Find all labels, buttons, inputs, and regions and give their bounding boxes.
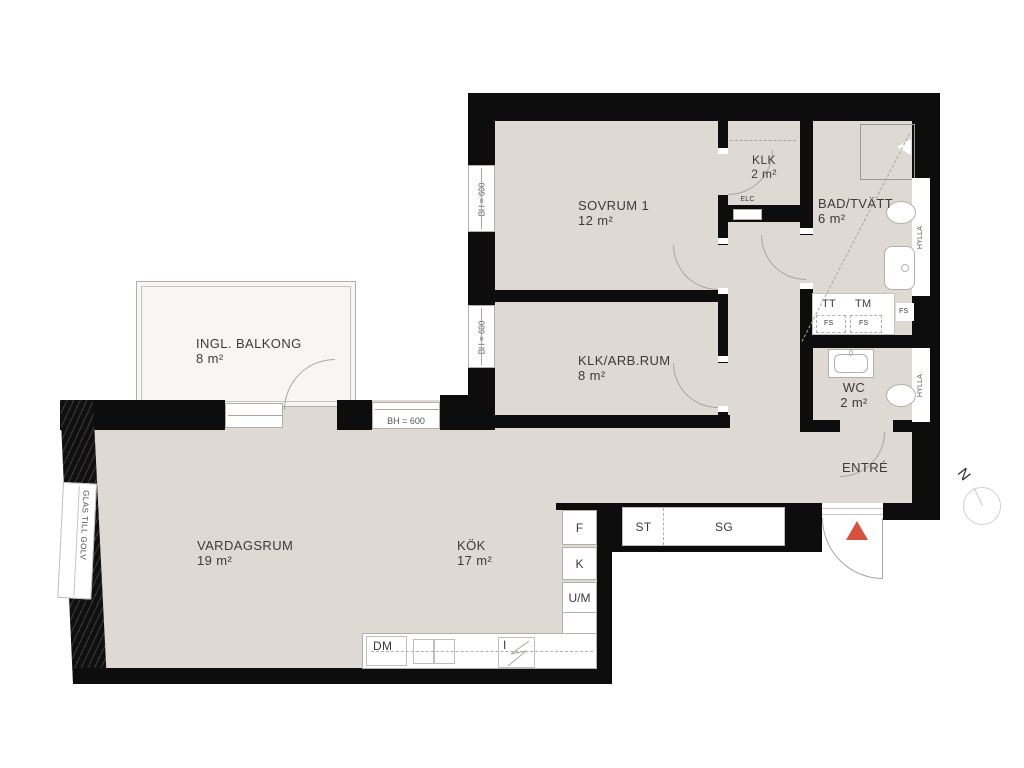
freezer-unit: K bbox=[562, 547, 597, 580]
st-label: ST bbox=[623, 508, 664, 545]
room-label-entre: ENTRÉ bbox=[842, 460, 888, 475]
wall-left-upper-b bbox=[468, 232, 495, 305]
door-jamb bbox=[718, 356, 728, 362]
room-label-vardagsrum: VARDAGSRUM19 m² bbox=[197, 538, 293, 569]
entrance-door-leaf bbox=[882, 518, 883, 579]
klk-rail-line bbox=[730, 140, 796, 141]
wall-left-upper-a bbox=[468, 93, 495, 165]
washbasin-bad bbox=[884, 246, 915, 290]
wall-wc-left bbox=[800, 348, 813, 420]
room-label-balkong: INGL. BALKONG8 m² bbox=[196, 336, 302, 367]
wall-band-top bbox=[556, 503, 608, 510]
wall-living-top-mid bbox=[337, 400, 372, 430]
hall-closets: ST SG bbox=[622, 507, 785, 546]
dishwasher-label: DM bbox=[373, 639, 392, 653]
wall-bottom bbox=[73, 668, 612, 684]
door-jamb bbox=[800, 228, 813, 234]
door-jamb bbox=[718, 148, 728, 154]
fs-label: FS bbox=[899, 308, 908, 316]
compass-icon bbox=[963, 487, 1001, 525]
fs-label: FS bbox=[824, 320, 833, 328]
window-klkarb: BH = 600 bbox=[468, 305, 495, 368]
room-label-kok: KÖK17 m² bbox=[457, 538, 492, 569]
sg-label: SG bbox=[664, 508, 784, 545]
door-jamb bbox=[718, 288, 728, 294]
faucet-icon bbox=[849, 350, 853, 356]
door-jamb bbox=[800, 283, 813, 289]
compass-north-label: N bbox=[953, 465, 974, 485]
toilet-wc bbox=[886, 384, 916, 407]
fridge-unit: F bbox=[562, 510, 597, 545]
window-glas-label: GLAS TILL GOLV bbox=[78, 490, 90, 560]
window-sovrum: BH = 600 bbox=[468, 165, 495, 232]
wall-entre-pier-right bbox=[893, 420, 912, 432]
room-label-wc: WC2 m² bbox=[823, 380, 885, 411]
wall-pier bbox=[440, 395, 468, 430]
elc-label: ELC bbox=[733, 196, 762, 204]
hob-box: I bbox=[498, 637, 535, 668]
wall-sovrum-klkarb bbox=[495, 290, 728, 302]
window-balcony-side bbox=[225, 403, 283, 428]
wall-corridor-bad-a bbox=[800, 121, 813, 235]
shelf-label: HYLLA bbox=[918, 225, 925, 248]
window-height-label-box: BH = 600 bbox=[373, 413, 439, 428]
basin-bowl bbox=[834, 354, 868, 373]
room-label-klkarb: KLK/ARB.RUM8 m² bbox=[578, 353, 671, 384]
shelf-wc: HYLLA bbox=[912, 348, 930, 422]
fs-niche: FS bbox=[896, 303, 914, 321]
oven-micro-unit: U/M bbox=[562, 582, 597, 613]
fridge-label: F bbox=[576, 521, 583, 535]
window-height-label: BH = 600 bbox=[387, 416, 425, 426]
door-jamb bbox=[718, 238, 728, 244]
wall-klkarb-right-a bbox=[718, 302, 728, 363]
laundry-strip: TT TM FS FS bbox=[812, 293, 895, 335]
wall-entre-pier-left bbox=[800, 420, 840, 432]
window-kitchen: BH = 600 bbox=[372, 402, 440, 429]
fs-label: FS bbox=[859, 320, 868, 328]
room-label-klk: KLK2 m² bbox=[735, 153, 793, 181]
wall-sovrum-right-a bbox=[718, 121, 728, 150]
entrance-marker-icon bbox=[846, 521, 868, 540]
room-label-bad: BAD/TVÄTT6 m² bbox=[818, 196, 893, 227]
faucet-icon bbox=[901, 264, 909, 272]
washer-label: TM bbox=[855, 298, 871, 311]
freezer-label: K bbox=[575, 557, 583, 571]
wall-entry-right-pier bbox=[883, 503, 940, 520]
hob-label: I bbox=[503, 638, 507, 652]
wall-klkarb-bottom bbox=[468, 415, 730, 428]
washbasin-wc bbox=[828, 349, 874, 378]
oven-micro-label: U/M bbox=[569, 591, 591, 605]
wall-top bbox=[468, 93, 940, 121]
door-jamb bbox=[718, 406, 728, 412]
wall-right bbox=[912, 93, 940, 520]
counter-bottom: DM I bbox=[362, 633, 597, 669]
dryer-label: TT bbox=[822, 298, 836, 311]
wall-bad-wc bbox=[800, 335, 930, 348]
room-label-sovrum1: SOVRUM 112 m² bbox=[578, 198, 649, 229]
counter-centerline bbox=[371, 651, 593, 652]
window-glas-till-golv: GLAS TILL GOLV bbox=[57, 482, 97, 600]
floor-plan: BH = 600 BH = 600 BH = 600 GLAS TILL GOL… bbox=[0, 0, 1024, 768]
elc-cabinet bbox=[733, 209, 762, 220]
shelf-label: HYLLA bbox=[918, 373, 925, 396]
